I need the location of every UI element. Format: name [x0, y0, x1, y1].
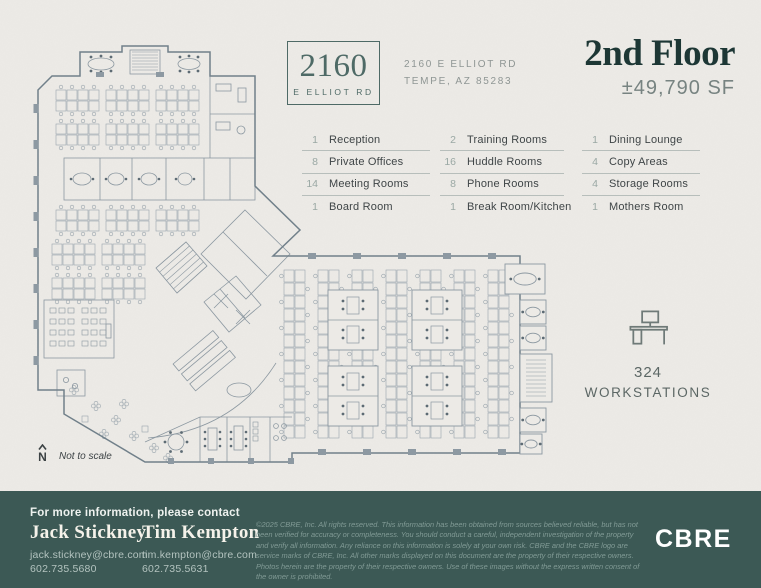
contact-email[interactable]: jack.stickney@cbre.com — [30, 549, 148, 561]
amenity-label: Reception — [329, 134, 380, 146]
contact-phone: 602.735.5631 — [142, 563, 260, 575]
amenity-row: 8Phone Rooms — [440, 174, 564, 196]
amenity-count: 1 — [440, 201, 456, 213]
amenity-label: Private Offices — [329, 156, 403, 168]
contact-email[interactable]: tim.kempton@cbre.com — [142, 549, 260, 561]
workstations-count: 324 — [583, 364, 713, 381]
amenity-label: Phone Rooms — [467, 178, 539, 190]
north-arrow-icon: N — [38, 444, 47, 463]
amenity-row: 16Huddle Rooms — [440, 151, 564, 173]
amenities-column-3: 1Dining Lounge 4Copy Areas 4Storage Room… — [582, 129, 700, 219]
amenity-row: 1Mothers Room — [582, 196, 700, 218]
address-line2: TEMPE, AZ 85283 — [404, 73, 517, 90]
amenity-count: 14 — [302, 178, 318, 190]
amenity-row: 1Break Room/Kitchen — [440, 196, 564, 218]
amenity-label: Board Room — [329, 201, 393, 213]
floor-header: 2nd Floor ±49,790 SF — [584, 35, 735, 100]
contact-name: Jack Stickney — [30, 522, 148, 544]
amenity-count: 8 — [302, 156, 318, 168]
amenity-count: 8 — [440, 178, 456, 190]
amenity-count: 1 — [302, 201, 318, 213]
contact-phone: 602.735.5680 — [30, 563, 148, 575]
amenity-row: 1Board Room — [302, 196, 430, 218]
desk-icon — [626, 308, 670, 355]
amenities-column-1: 1Reception 8Private Offices 14Meeting Ro… — [302, 129, 430, 219]
workstations-summary: 324 WORKSTATIONS — [583, 308, 713, 400]
amenity-count: 4 — [582, 156, 598, 168]
amenity-label: Dining Lounge — [609, 134, 683, 146]
amenity-row: 1Reception — [302, 129, 430, 151]
amenity-label: Training Rooms — [467, 134, 547, 146]
amenities-table: 1Reception 8Private Offices 14Meeting Ro… — [302, 129, 700, 219]
amenity-row: 4Copy Areas — [582, 151, 700, 173]
amenity-count: 16 — [440, 156, 456, 168]
amenity-label: Meeting Rooms — [329, 178, 409, 190]
amenity-label: Copy Areas — [609, 156, 668, 168]
amenity-row: 14Meeting Rooms — [302, 174, 430, 196]
amenity-count: 2 — [440, 134, 456, 146]
page-title: 2nd Floor — [584, 35, 735, 74]
property-address: 2160 E ELLIOT RD TEMPE, AZ 85283 — [404, 56, 517, 90]
floor-area: ±49,790 SF — [584, 77, 735, 100]
amenity-row: 1Dining Lounge — [582, 129, 700, 151]
workstations-label: WORKSTATIONS — [583, 385, 713, 400]
address-line1: 2160 E ELLIOT RD — [404, 56, 517, 73]
flyer-page: 2160 E ELLIOT RD 2160 E ELLIOT RD TEMPE,… — [0, 0, 761, 588]
amenity-label: Storage Rooms — [609, 178, 688, 190]
contact-name: Tim Kempton — [142, 522, 260, 544]
property-logo-street: E ELLIOT RD — [293, 87, 373, 97]
north-label: N — [38, 451, 47, 463]
legal-disclaimer: ©2025 CBRE, Inc. All rights reserved. Th… — [256, 520, 642, 582]
property-logo: 2160 E ELLIOT RD — [287, 41, 380, 105]
amenity-label: Break Room/Kitchen — [467, 201, 571, 213]
amenities-column-2: 2Training Rooms 16Huddle Rooms 8Phone Ro… — [440, 129, 564, 219]
amenity-count: 1 — [302, 134, 318, 146]
amenity-label: Huddle Rooms — [467, 156, 542, 168]
amenity-count: 1 — [582, 201, 598, 213]
property-logo-number: 2160 — [300, 50, 368, 83]
amenity-row: 8Private Offices — [302, 151, 430, 173]
amenity-label: Mothers Room — [609, 201, 684, 213]
cbre-logo: CBRE — [655, 525, 732, 554]
amenity-count: 4 — [582, 178, 598, 190]
contact-heading: For more information, please contact — [30, 507, 240, 519]
amenity-count: 1 — [582, 134, 598, 146]
amenity-row: 4Storage Rooms — [582, 174, 700, 196]
scale-note-block: N Not to scale — [38, 444, 112, 463]
contact-card: Jack Stickney jack.stickney@cbre.com 602… — [30, 522, 148, 575]
contact-card: Tim Kempton tim.kempton@cbre.com 602.735… — [142, 522, 260, 575]
footer: For more information, please contact Jac… — [0, 491, 761, 588]
amenity-row: 2Training Rooms — [440, 129, 564, 151]
scale-note: Not to scale — [59, 451, 112, 463]
